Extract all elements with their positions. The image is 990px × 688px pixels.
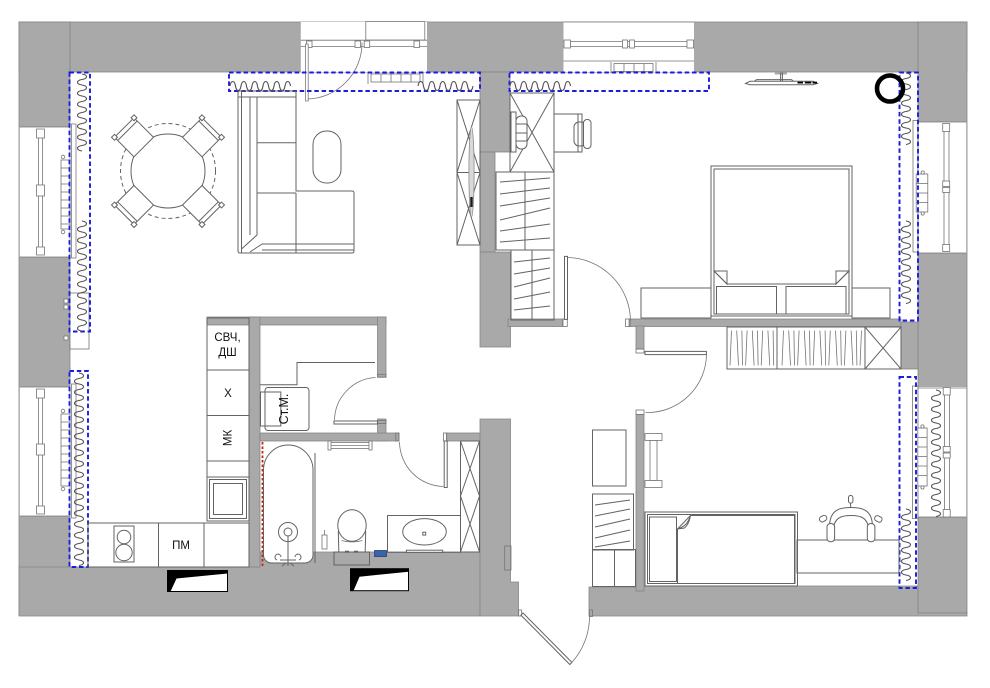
- svg-text:ДШ: ДШ: [218, 347, 236, 359]
- svg-text:X: X: [224, 388, 232, 400]
- svg-text:ПМ: ПМ: [172, 540, 190, 552]
- svg-text:Ст.М.: Ст.М.: [277, 394, 291, 425]
- svg-text:МК: МК: [223, 430, 235, 447]
- svg-text:СВЧ,: СВЧ,: [214, 332, 240, 344]
